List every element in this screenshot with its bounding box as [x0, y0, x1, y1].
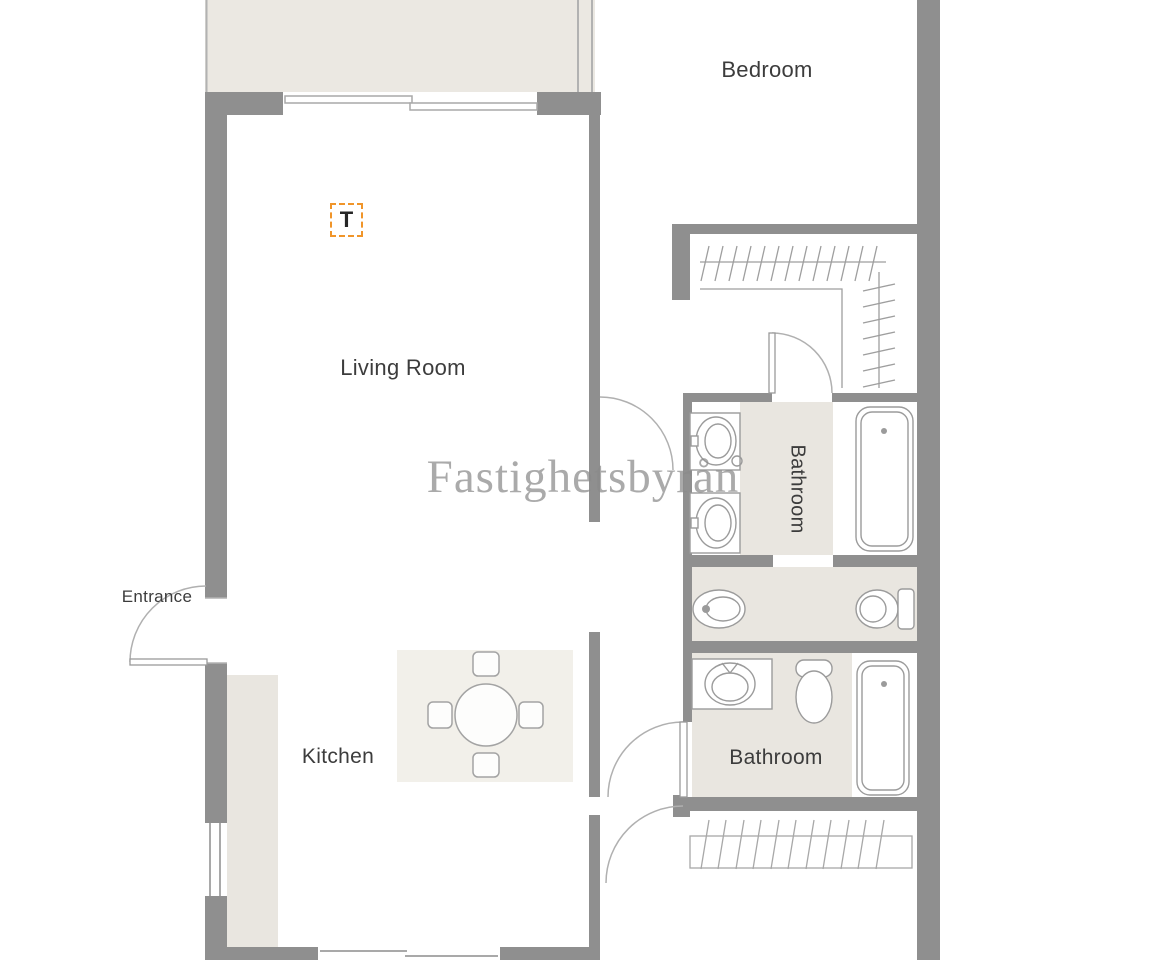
tv-outlet-label: T [340, 207, 353, 233]
chair-west [428, 702, 452, 728]
bedroom-label: Bedroom [721, 57, 812, 83]
hall-door [589, 797, 683, 883]
living-room-label: Living Room [340, 355, 466, 381]
wardrobe-upper [700, 246, 895, 388]
toilet-upper [856, 590, 898, 628]
dining-table [455, 684, 517, 746]
chair-north [473, 652, 499, 676]
wardrobe-lower [690, 820, 912, 869]
bathroom-lower-label: Bathroom [729, 746, 822, 770]
toilet-lower [796, 671, 832, 723]
bathroom-lower-fixtures [692, 653, 917, 797]
dining-set [428, 652, 543, 777]
bathroom-lower-door [608, 722, 692, 797]
kitchen-label: Kitchen [302, 745, 374, 769]
balcony-sliding-door [283, 92, 537, 115]
toilet-upper-tank [898, 589, 914, 629]
faucet-2 [691, 518, 698, 528]
bidet [693, 590, 745, 628]
tv-outlet-marker: T [330, 203, 363, 237]
faucet-1 [691, 436, 698, 446]
bathroom-upper-door [769, 333, 832, 393]
floor-plan: Fastighetsbyrån Living Room Kitchen Bedr… [0, 0, 1167, 960]
chair-east [519, 702, 543, 728]
bathroom-upper-label: Bathroom [786, 444, 809, 533]
drain [881, 428, 887, 434]
bottom-window [318, 947, 500, 960]
chair-south [473, 753, 499, 777]
drain [881, 681, 887, 687]
bathtub-lower [857, 661, 909, 795]
agency-watermark: Fastighetsbyrån [427, 450, 740, 504]
entrance-label: Entrance [122, 587, 192, 607]
balcony-railing [207, 0, 593, 92]
kitchen-window [205, 823, 227, 896]
